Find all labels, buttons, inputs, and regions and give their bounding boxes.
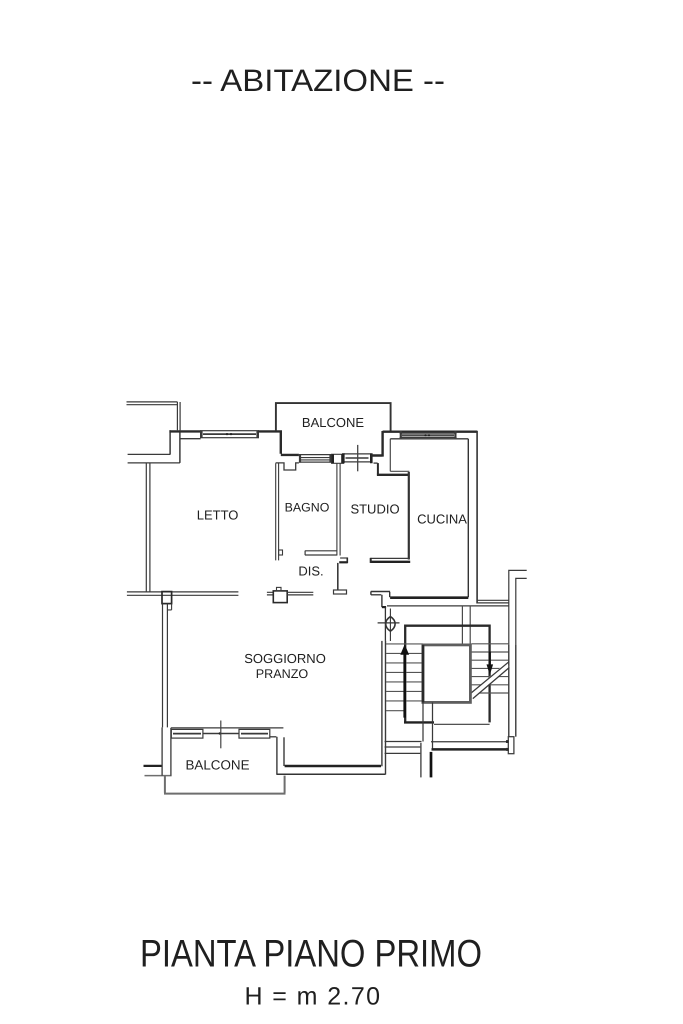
svg-text:PRANZO: PRANZO — [256, 667, 309, 681]
svg-text:H = m 2.70: H = m 2.70 — [245, 983, 382, 1011]
svg-text:DIS.: DIS. — [298, 564, 323, 579]
svg-text:CUCINA: CUCINA — [417, 512, 467, 527]
svg-text:SOGGIORNO: SOGGIORNO — [244, 651, 326, 666]
svg-text:BALCONE: BALCONE — [302, 415, 364, 430]
svg-text:STUDIO: STUDIO — [350, 502, 399, 517]
svg-text:BALCONE: BALCONE — [186, 758, 250, 773]
svg-text:-- ABITAZIONE --: -- ABITAZIONE -- — [191, 63, 445, 98]
svg-text:BAGNO: BAGNO — [285, 501, 330, 515]
svg-text:PIANTA PIANO PRIMO: PIANTA PIANO PRIMO — [140, 933, 482, 976]
svg-text:LETTO: LETTO — [197, 508, 239, 523]
